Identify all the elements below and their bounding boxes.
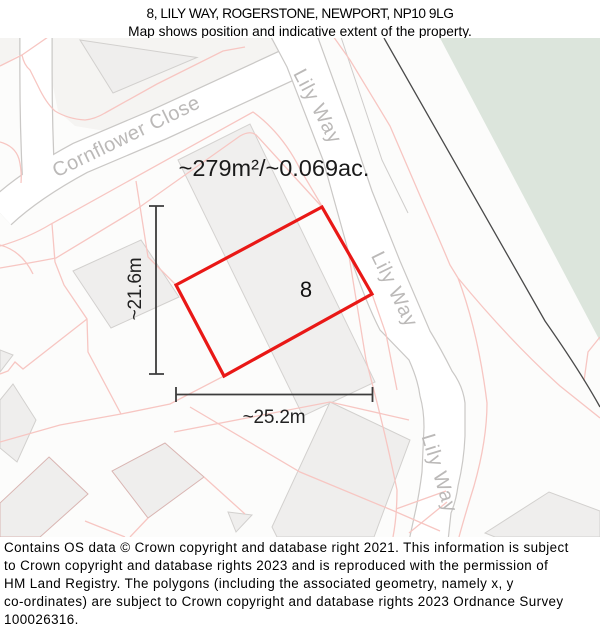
svg-text:~25.2m: ~25.2m — [243, 407, 306, 428]
svg-text:8: 8 — [300, 277, 312, 302]
svg-text:~21.6m: ~21.6m — [125, 258, 146, 321]
svg-text:~279m²/~0.069ac.: ~279m²/~0.069ac. — [179, 155, 370, 181]
